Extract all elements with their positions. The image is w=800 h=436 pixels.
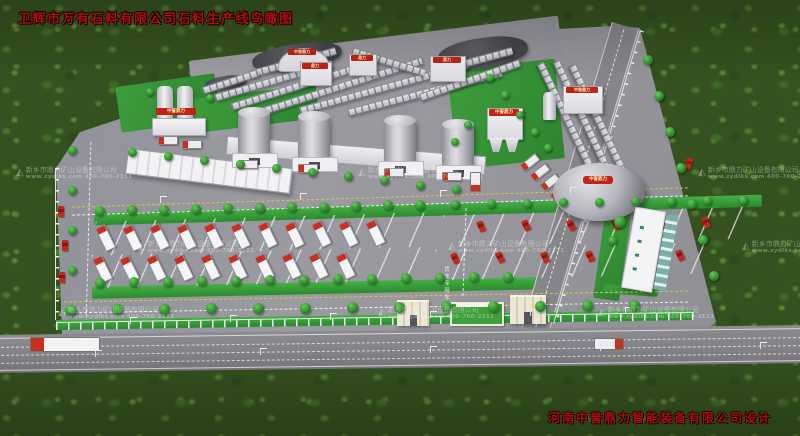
tree (452, 185, 461, 194)
street-lamp (430, 346, 437, 353)
watermark-website: www.zydlks.com (608, 314, 665, 320)
watermark: ◭新乡市鼎力矿山设备有限公司www.zydlks.com 400-700-211… (448, 240, 564, 254)
watermark-text: 新乡市鼎力矿山设备有限公司www.zydlks.com 400-700-2111 (388, 306, 495, 320)
aerial-rendering-scene: 中誉鼎力 鼎力 鼎力 鼎力 中誉鼎力 中誉鼎力 中誉鼎力 中誉鼎力 货车专用车道 (0, 0, 800, 436)
tree (299, 275, 309, 285)
street-lamp (230, 315, 237, 322)
car-roof (58, 209, 64, 212)
street-lamp (300, 193, 307, 200)
watermark-text: 新乡市鼎力矿山设备有限公司www.zydlks.com 400-700-2111 (458, 240, 565, 254)
watermark-website: www.zydlks.com (458, 248, 515, 254)
watermark-company: 新乡市鼎力矿山设备有限公司 (608, 306, 715, 314)
truck-cab (255, 254, 266, 263)
cement-silo (177, 86, 193, 122)
watermark-contact: www.zydlks.com 400-700-2111 (752, 248, 800, 254)
watermark-logo-icon: ◭ (358, 167, 366, 179)
tree (200, 156, 209, 165)
tree (501, 91, 509, 99)
watermark-contact: www.zydlks.com 400-700-2111 (388, 314, 495, 320)
watermark-phone: 400-700-2111 (85, 174, 133, 180)
watermark-website: www.zydlks.com (148, 248, 205, 254)
street-lamp (440, 190, 447, 197)
watermark: ◭新乡市鼎力矿山设备有限公司www.zydlks.com 400-700-211… (698, 166, 800, 180)
watermark-logo-icon: ◭ (698, 167, 706, 179)
truck-on-highway (594, 338, 624, 350)
building-sign: 鼎力 (302, 63, 328, 69)
truck-on-west-road (59, 272, 65, 283)
designer-credit: 河南中誉鼎力智能装备有限公司设计 (548, 409, 772, 426)
tree (516, 111, 524, 119)
aggregate-silo (298, 116, 330, 166)
car-roof (541, 254, 548, 259)
silo-cap (238, 107, 270, 118)
car-roof (62, 243, 68, 246)
car-roof (451, 255, 458, 260)
truck-cab (174, 255, 185, 264)
truck-cab (258, 222, 269, 231)
building-sign: 鼎力 (351, 55, 373, 61)
truck-cab (231, 223, 242, 232)
watermark-text: 新乡市鼎力矿山设备有限公司www.zydlks.com 400-700-2111 (608, 306, 715, 320)
truck-cab (120, 256, 131, 265)
tree (614, 216, 626, 228)
tree (631, 197, 640, 206)
car-roof (522, 222, 529, 227)
truck-cab (150, 224, 161, 233)
truck-on-west-road (62, 240, 68, 251)
loading-truck (182, 140, 202, 149)
watermark-company: 新乡市鼎力矿山设备有限公司 (26, 166, 133, 174)
watermark-logo-icon: ◭ (138, 241, 146, 253)
tree (559, 198, 568, 207)
tree (415, 200, 425, 210)
watermark-phone: 400-700-2111 (667, 314, 715, 320)
truck-cab (366, 220, 377, 229)
tree (608, 236, 617, 245)
aggregate-silo (384, 120, 416, 170)
watermark-text: 新乡市鼎力矿山设备有限公司www.zydlks.com 400-700-2111 (68, 306, 175, 320)
truck-cab (147, 255, 158, 264)
street-lamp (760, 342, 767, 349)
car-roof (586, 253, 593, 258)
tree (146, 88, 154, 96)
car-roof (59, 275, 65, 278)
watermark: ◭新乡市鼎力矿山设备有限公司www.zydlks.com 400-700-211… (358, 166, 474, 180)
building-sign: 鼎力 (433, 57, 461, 63)
tree (68, 146, 77, 155)
truck-on-west-road (58, 206, 64, 217)
tree (206, 94, 214, 102)
tree (703, 196, 712, 205)
truck-cab (282, 254, 293, 263)
tree (709, 271, 719, 281)
car-roof (676, 252, 683, 257)
tree (344, 172, 353, 181)
truck-cab (201, 255, 212, 264)
watermark-phone: 400-700-2111 (207, 248, 255, 254)
watermark-logo-icon: ◭ (448, 241, 456, 253)
tree (347, 302, 358, 313)
watermark-phone: 400-700-2111 (127, 314, 175, 320)
tree (164, 152, 173, 161)
tree (68, 226, 77, 235)
silo-cap (298, 111, 330, 122)
office-window (635, 253, 639, 257)
tree (253, 303, 264, 314)
tree (68, 266, 77, 275)
watermark-contact: www.zydlks.com 400-700-2111 (708, 174, 800, 180)
silo-cap (384, 115, 416, 126)
tree (206, 303, 217, 314)
street-lamp (330, 313, 337, 320)
water-tank (543, 92, 556, 120)
tree (698, 235, 708, 245)
watermark-website: www.zydlks.com (752, 248, 800, 254)
truck-cab (339, 221, 350, 230)
truck-cab (96, 225, 107, 234)
watermark-contact: www.zydlks.com 400-700-2111 (26, 174, 133, 180)
watermark-website: www.zydlks.com (368, 174, 425, 180)
watermark-contact: www.zydlks.com 400-700-2111 (368, 174, 475, 180)
tree (503, 272, 513, 282)
watermark-contact: www.zydlks.com 400-700-2111 (608, 314, 715, 320)
watermark-company: 新乡市鼎力矿山设备有限公司 (148, 240, 255, 248)
office-window (640, 226, 644, 230)
watermark-phone: 400-700-2111 (447, 314, 495, 320)
watermark-logo-icon: ◭ (598, 307, 606, 319)
building-sign: 中誉鼎力 (156, 108, 196, 115)
building-sign: 中誉鼎力 (566, 87, 598, 93)
batching-plant-base (152, 118, 206, 136)
watermark-website: www.zydlks.com (708, 174, 765, 180)
tree (486, 74, 494, 82)
truck-cab (285, 222, 296, 231)
aggregate-silo (238, 112, 270, 162)
watermark: ◭新乡市鼎力矿山设备有限公司www.zydlks.com 400-700-211… (138, 240, 254, 254)
watermark-company: 新乡市鼎力矿山设备有限公司 (708, 166, 800, 174)
watermark-logo-icon: ◭ (58, 307, 66, 319)
watermark: ◭新乡市鼎力矿山设备有限公司www.zydlks.com 400-700-211… (58, 306, 174, 320)
perimeter-fence (55, 168, 59, 320)
tree (95, 206, 105, 216)
truck-cab (93, 256, 104, 265)
tree (319, 202, 329, 212)
tree (739, 196, 748, 205)
watermark: ◭新乡市鼎力矿山设备有限公司www.zydlks.com 400-700-211… (742, 240, 800, 254)
watermark-phone: 400-700-2111 (767, 174, 800, 180)
dome-storage: 中誉鼎力 (553, 163, 645, 221)
watermark-contact: www.zydlks.com 400-700-2111 (68, 314, 175, 320)
tree (159, 205, 169, 215)
street-lamp (95, 350, 102, 357)
watermark-phone: 400-700-2111 (427, 174, 475, 180)
tree (676, 163, 686, 173)
tree (464, 121, 472, 129)
truck-cab (336, 253, 347, 262)
car-roof (496, 254, 503, 259)
watermark-text: 新乡市鼎力矿山设备有限公司www.zydlks.com 400-700-2111 (752, 240, 800, 254)
tree (595, 198, 604, 207)
tree (667, 197, 676, 206)
tree (367, 274, 377, 284)
watermark-company: 新乡市鼎力矿山设备有限公司 (458, 240, 565, 248)
truck-cab (309, 253, 320, 262)
watermark: ◭新乡市鼎力矿山设备有限公司www.zydlks.com 400-700-211… (378, 306, 494, 320)
watermark-phone: 400-700-2111 (517, 248, 565, 254)
car-roof (567, 221, 574, 226)
office-window (632, 267, 636, 271)
watermark-contact: www.zydlks.com 400-700-2111 (458, 248, 565, 254)
tree (544, 144, 552, 152)
truck-cab (123, 225, 134, 234)
watermark-website: www.zydlks.com (68, 314, 125, 320)
tree (272, 164, 281, 173)
watermark: ◭新乡市鼎力矿山设备有限公司www.zydlks.com 400-700-211… (16, 166, 132, 180)
tree (523, 199, 532, 208)
truck-cab (228, 254, 239, 263)
car-roof (477, 223, 484, 228)
tree (487, 199, 496, 208)
watermark-company: 新乡市鼎力矿山设备有限公司 (68, 306, 175, 314)
page-title: 卫辉市万有石料有限公司石料生产线鸟瞰图 (18, 8, 294, 27)
tree (535, 301, 546, 312)
watermark-company: 新乡市鼎力矿山设备有限公司 (388, 306, 495, 314)
watermark-company: 新乡市鼎力矿山设备有限公司 (368, 166, 475, 174)
street-lamp (600, 344, 607, 351)
watermark-text: 新乡市鼎力矿山设备有限公司www.zydlks.com 400-700-2111 (26, 166, 133, 180)
cement-silo (157, 86, 173, 122)
office-window (637, 240, 641, 244)
tree (531, 128, 539, 136)
tree (665, 127, 675, 137)
tree (643, 55, 653, 65)
tree (351, 201, 361, 211)
tree (255, 203, 265, 213)
tree (451, 138, 459, 146)
watermark-text: 新乡市鼎力矿山设备有限公司www.zydlks.com 400-700-2111 (148, 240, 255, 254)
watermark-website: www.zydlks.com (388, 314, 445, 320)
tree (300, 303, 311, 314)
street-lamp (260, 348, 267, 355)
dome-sign: 中誉鼎力 (583, 176, 613, 184)
watermark: ◭新乡市鼎力矿山设备有限公司www.zydlks.com 400-700-211… (598, 306, 714, 320)
tree (416, 181, 425, 190)
truck-on-highway (30, 337, 100, 352)
car-roof (702, 219, 709, 224)
truck-cab (312, 221, 323, 230)
tree (687, 199, 697, 209)
watermark-logo-icon: ◭ (742, 241, 750, 253)
truck-cab (204, 223, 215, 232)
street-lamp (160, 196, 167, 203)
tree (68, 186, 77, 195)
tree (128, 148, 137, 157)
watermark-logo-icon: ◭ (16, 167, 24, 179)
tree (654, 91, 664, 101)
watermark-logo-icon: ◭ (378, 307, 386, 319)
tree (451, 200, 460, 209)
tree (582, 300, 593, 311)
truck-cab (177, 224, 188, 233)
tree (95, 278, 105, 288)
street-lamp (570, 187, 577, 194)
building-sign: 中誉鼎力 (288, 49, 316, 55)
watermark-website: www.zydlks.com (26, 174, 83, 180)
building-sign: 中誉鼎力 (489, 109, 519, 116)
loading-truck (158, 136, 178, 145)
tree (236, 160, 245, 169)
watermark-text: 新乡市鼎力矿山设备有限公司www.zydlks.com 400-700-2111 (368, 166, 475, 180)
watermark-text: 新乡市鼎力矿山设备有限公司www.zydlks.com 400-700-2111 (708, 166, 800, 180)
watermark-contact: www.zydlks.com 400-700-2111 (148, 248, 255, 254)
tree (163, 277, 173, 287)
tree (231, 276, 241, 286)
watermark-company: 新乡市鼎力矿山设备有限公司 (752, 240, 800, 248)
tree (308, 168, 317, 177)
car-roof (686, 160, 693, 165)
tree (435, 273, 445, 283)
